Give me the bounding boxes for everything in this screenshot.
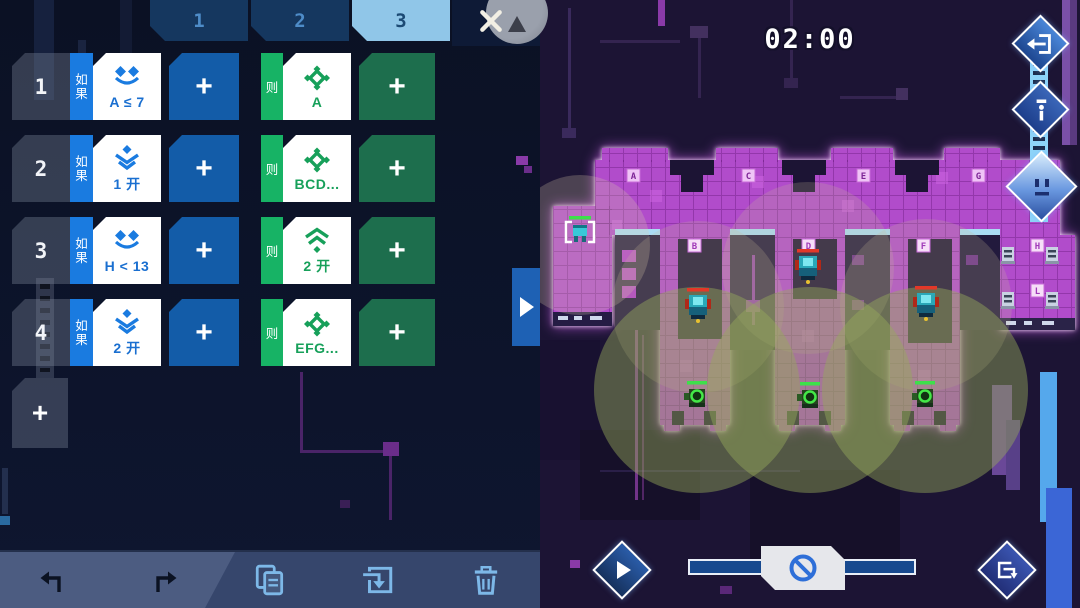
add-condition-button[interactable]: +: [169, 53, 239, 120]
scan-eyes-icon: [111, 228, 143, 256]
if-tag: 如果: [70, 299, 93, 366]
delete-button[interactable]: [468, 562, 504, 598]
move-target-icon: [301, 310, 333, 338]
add-action-button[interactable]: +: [359, 53, 435, 120]
copy-button[interactable]: [252, 562, 288, 598]
rule-number[interactable]: 3: [12, 217, 70, 284]
rule-editor-panel: 1 2 3 1 如果 A ≤ 7 + 则 A: [0, 0, 540, 608]
game-map[interactable]: A C E G B D F H L: [540, 0, 1080, 608]
exit-icon: [1026, 29, 1056, 59]
info-icon: [1027, 95, 1055, 125]
action-card[interactable]: EFG...: [283, 299, 351, 366]
toolbar-highlight: [0, 552, 235, 608]
add-action-button[interactable]: +: [359, 135, 435, 202]
no-entry-icon: [787, 552, 819, 584]
marker-label: H: [1035, 242, 1040, 252]
rule-row-4: 4 如果 2 开 + 则 EFG... +: [12, 299, 435, 366]
rule-row-3: 3 如果 H < 13 + 则 2 开 +: [12, 217, 435, 284]
action-label: A: [312, 94, 323, 110]
action-label: 2 开: [303, 256, 330, 276]
then-tag: 则: [261, 53, 283, 120]
then-tag: 则: [261, 135, 283, 202]
circuit-decor: [383, 442, 399, 456]
plus-icon: +: [388, 234, 406, 268]
condition-card[interactable]: 2 开: [93, 299, 161, 366]
rule-number[interactable]: 1: [12, 53, 70, 120]
tab-3[interactable]: 3: [352, 0, 450, 41]
play-icon: [609, 557, 635, 583]
move-target-icon: [301, 64, 333, 92]
plus-icon: +: [195, 234, 213, 268]
tab-label: 1: [193, 10, 204, 32]
redo-button[interactable]: [143, 562, 179, 598]
signal-up-icon: [301, 226, 333, 254]
circuit-decor: [300, 372, 303, 452]
rule-number-label: 3: [35, 239, 48, 263]
close-button[interactable]: [478, 8, 504, 34]
if-tag: 如果: [70, 217, 93, 284]
then-tag: 则: [261, 217, 283, 284]
rule-row-2: 2 如果 1 开 + 则 BCD... +: [12, 135, 435, 202]
move-target-icon: [301, 146, 333, 174]
condition-label: A ≤ 7: [109, 94, 144, 110]
level-timer: 02:00: [540, 24, 1080, 55]
scan-eyes-icon: [111, 64, 143, 92]
circuit-decor: [524, 166, 532, 173]
add-condition-button[interactable]: +: [169, 135, 239, 202]
close-icon: [478, 8, 504, 34]
add-condition-button[interactable]: +: [169, 299, 239, 366]
then-tag: 则: [261, 299, 283, 366]
add-condition-button[interactable]: +: [169, 217, 239, 284]
marker-label: B: [692, 242, 698, 252]
add-rule-button[interactable]: +: [12, 378, 68, 448]
marker-label: A: [631, 172, 637, 182]
circuit-decor: [2, 468, 8, 514]
condition-label: 2 开: [113, 338, 140, 358]
redo-icon: [145, 564, 177, 596]
game-map-panel: A C E G B D F H L: [540, 0, 1080, 608]
tab-label: 3: [395, 10, 406, 32]
action-card[interactable]: A: [283, 53, 351, 120]
import-button[interactable]: [360, 562, 396, 598]
add-action-button[interactable]: +: [359, 299, 435, 366]
app-root: 1 2 3 1 如果 A ≤ 7 + 则 A: [0, 0, 1080, 608]
rule-number[interactable]: 4: [12, 299, 70, 366]
circuit-decor: [340, 500, 350, 508]
rule-number[interactable]: 2: [12, 135, 70, 202]
marker-label: G: [976, 172, 981, 182]
stack-down-icon: [111, 144, 143, 172]
circuit-decor: [516, 156, 528, 165]
undo-icon: [40, 564, 72, 596]
action-label: BCD...: [295, 176, 340, 192]
rule-number-label: 1: [35, 75, 48, 99]
if-tag: 如果: [70, 135, 93, 202]
rule-number-label: 4: [35, 321, 48, 345]
marker-label: L: [1035, 287, 1041, 297]
condition-label: H < 13: [105, 258, 150, 274]
marker-label: E: [861, 172, 866, 182]
tab-2[interactable]: 2: [251, 0, 349, 41]
tab-label: 2: [294, 10, 305, 32]
leave-level-icon: [993, 556, 1021, 584]
panel-expand-handle[interactable]: [512, 268, 540, 346]
trash-icon: [469, 563, 503, 597]
action-card[interactable]: 2 开: [283, 217, 351, 284]
circuit-decor: [389, 456, 392, 520]
undo-button[interactable]: [38, 562, 74, 598]
tab-1[interactable]: 1: [150, 0, 248, 41]
stack-down-icon: [111, 308, 143, 336]
copy-icon: [253, 563, 287, 597]
plus-icon: +: [388, 316, 406, 350]
speed-slider-handle[interactable]: [761, 546, 845, 590]
plus-icon: +: [195, 152, 213, 186]
marker-label: F: [921, 242, 926, 252]
action-card[interactable]: BCD...: [283, 135, 351, 202]
plus-icon: +: [388, 152, 406, 186]
condition-card[interactable]: H < 13: [93, 217, 161, 284]
if-tag: 如果: [70, 53, 93, 120]
robot-face-icon: [1025, 170, 1059, 204]
chevron-right-icon: [520, 297, 534, 317]
plus-icon: +: [32, 397, 48, 429]
circuit-decor: [300, 450, 390, 453]
import-icon: [361, 563, 395, 597]
condition-label: 1 开: [113, 174, 140, 194]
plus-icon: +: [388, 70, 406, 104]
circuit-decor: [0, 516, 10, 525]
action-label: EFG...: [295, 340, 338, 356]
marker-label: C: [746, 172, 751, 182]
add-action-button[interactable]: +: [359, 217, 435, 284]
rule-row-1: 1 如果 A ≤ 7 + 则 A +: [12, 53, 435, 120]
editor-toolbar: [0, 550, 540, 608]
rule-number-label: 2: [35, 157, 48, 181]
plus-icon: +: [195, 316, 213, 350]
condition-card[interactable]: 1 开: [93, 135, 161, 202]
plus-icon: +: [195, 70, 213, 104]
condition-card[interactable]: A ≤ 7: [93, 53, 161, 120]
